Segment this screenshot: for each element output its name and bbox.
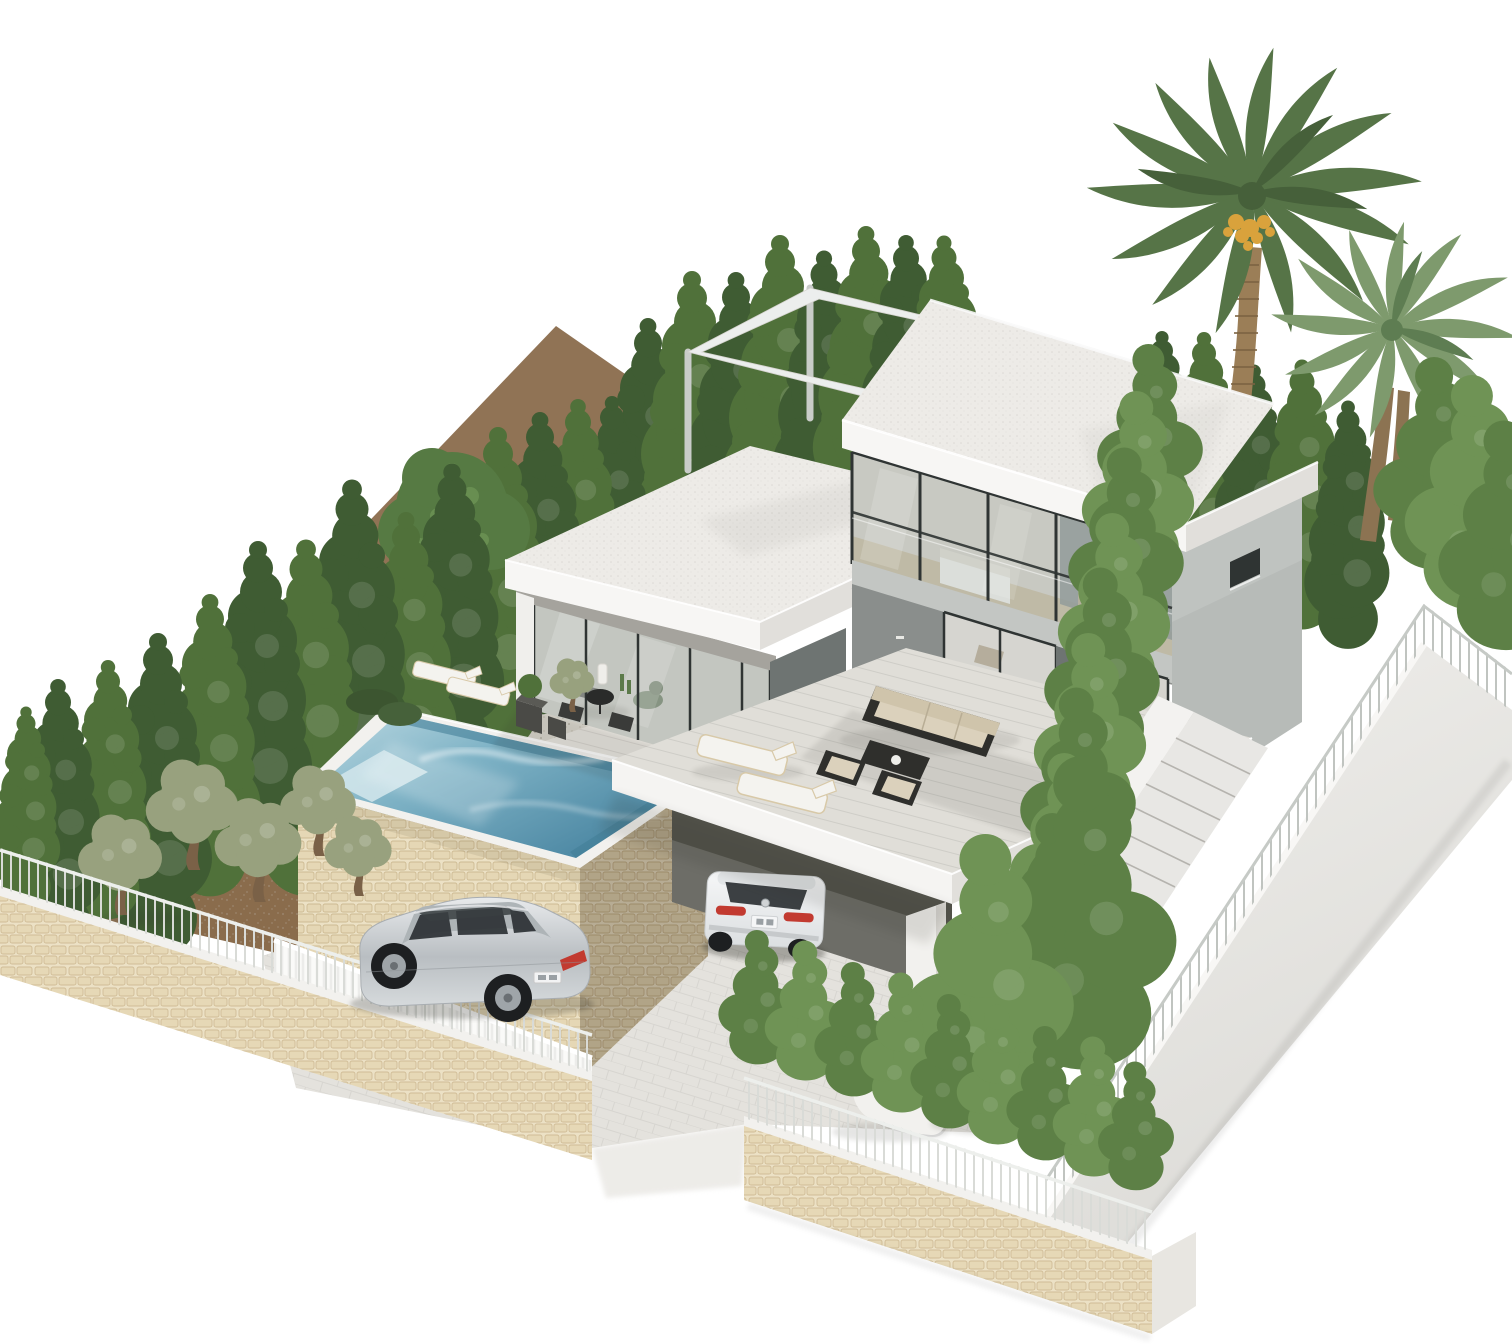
render-canvas: 3D architectural rendering of a modern t… (0, 0, 1512, 1344)
villa-3d-rendering: 3D architectural rendering of a modern t… (0, 0, 1512, 1344)
